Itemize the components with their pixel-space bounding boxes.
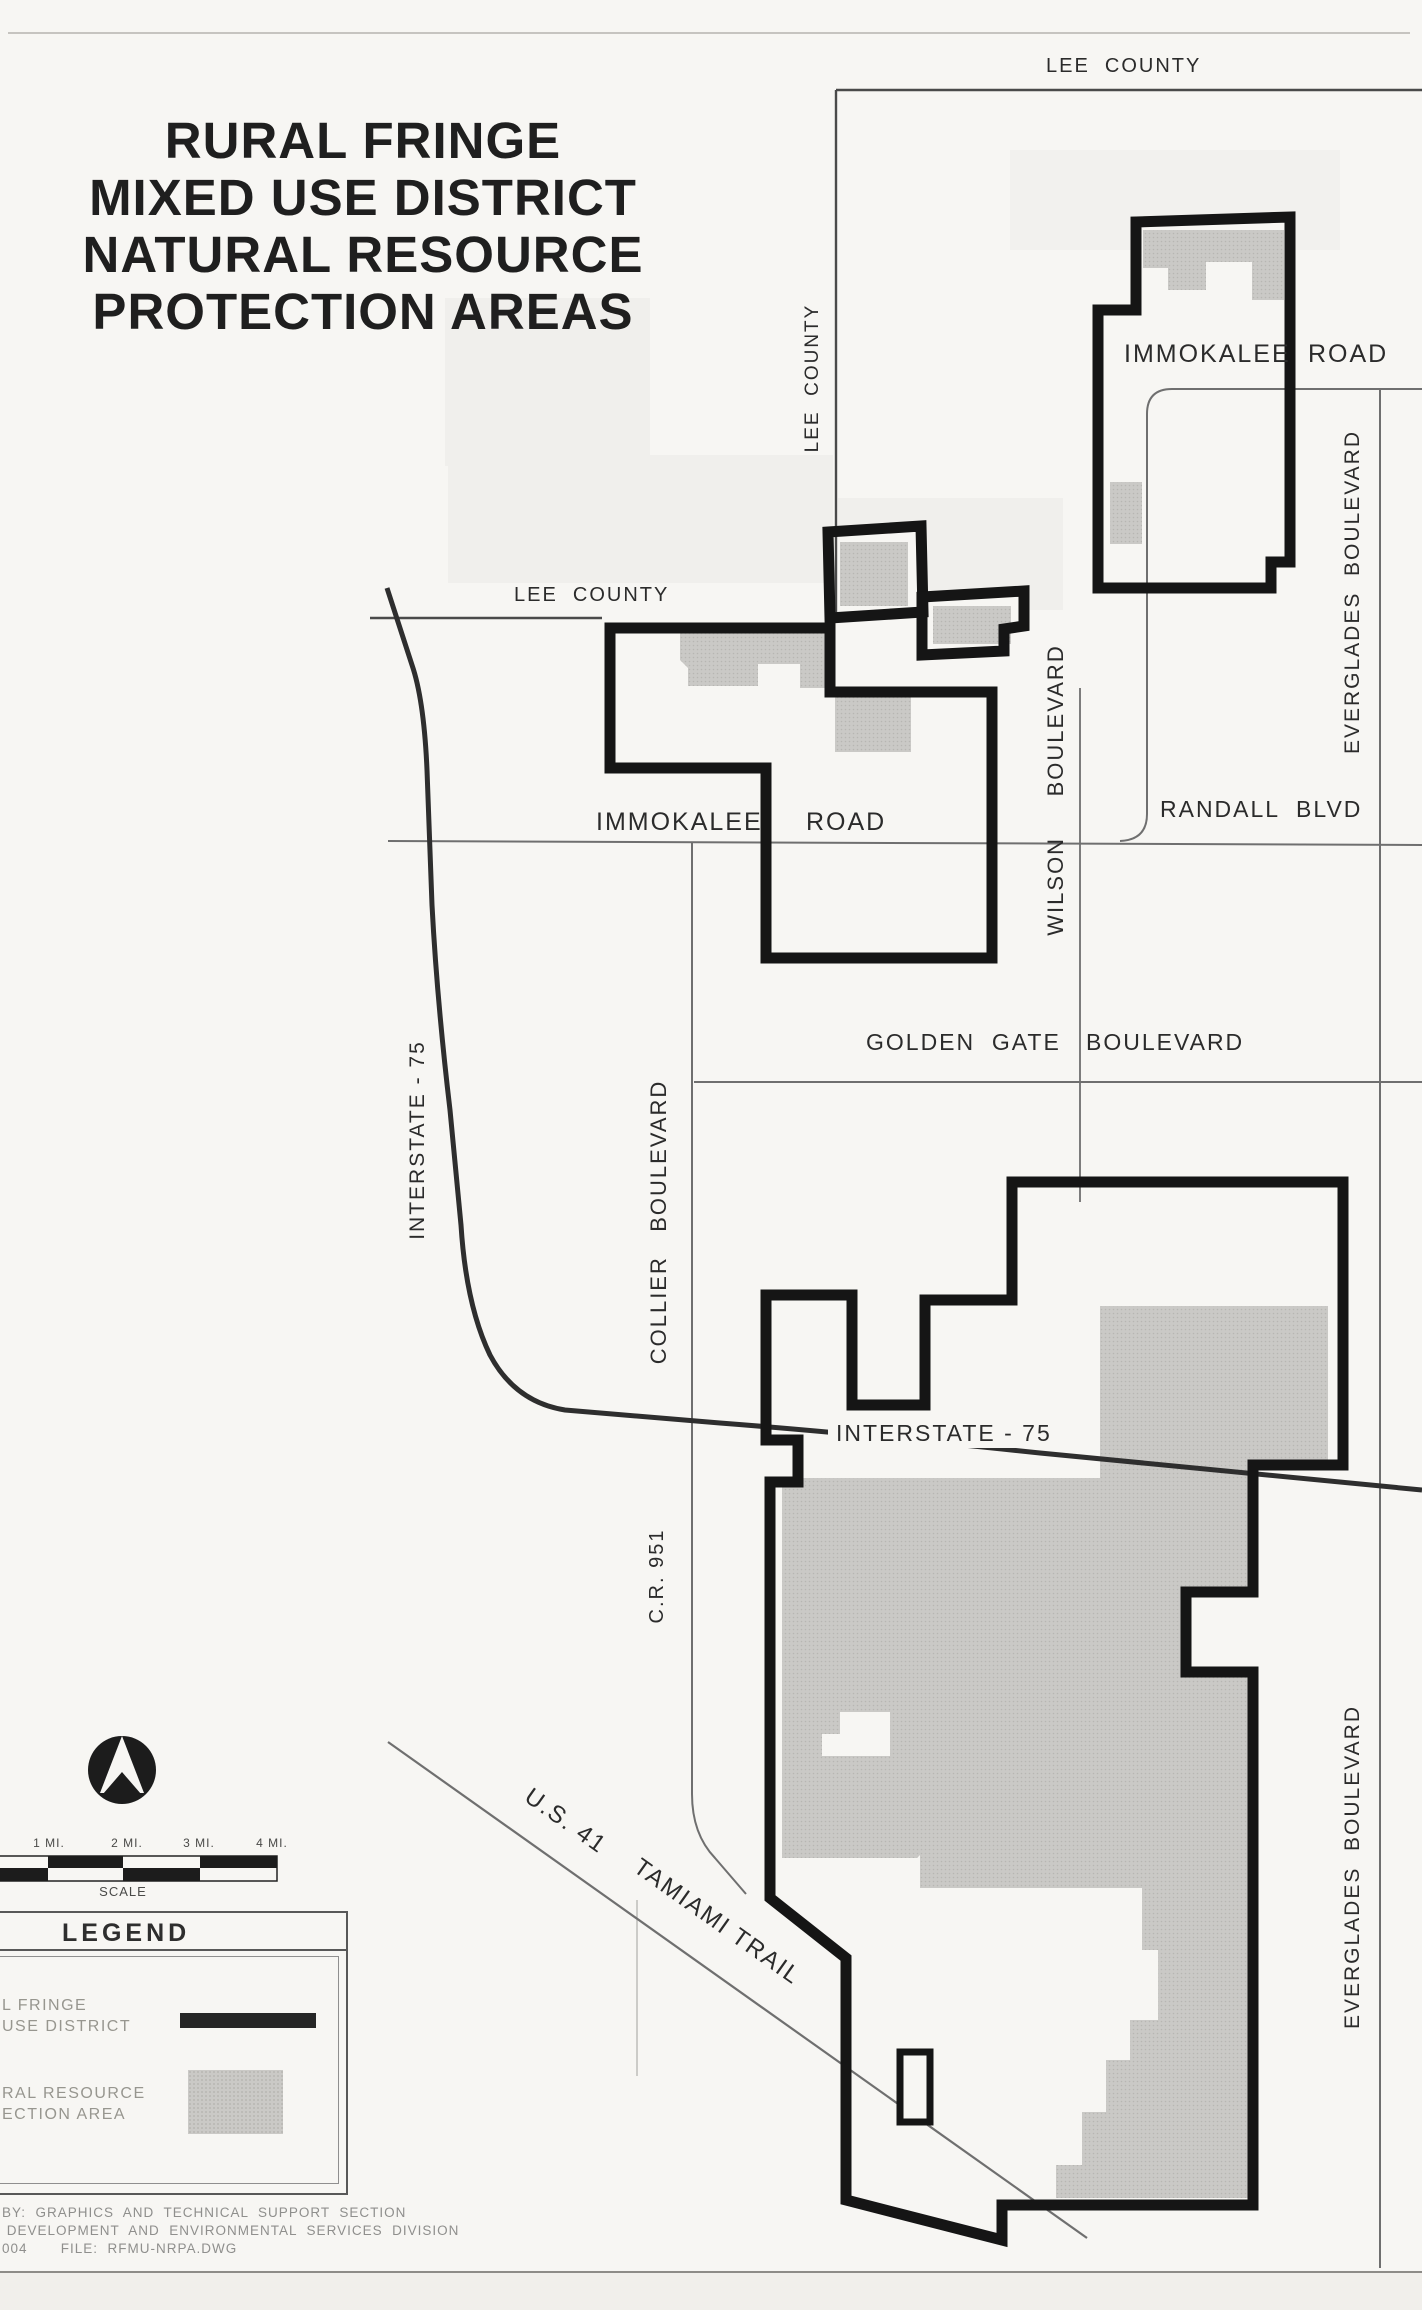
scale-tick-4mi: 4 MI. — [237, 1836, 307, 1850]
label-golden-gate-boulevard: GOLDEN GATE BOULEVARD — [866, 1031, 1244, 1054]
legend-item-nrpa-line2: ECTION AREA — [2, 2106, 126, 2124]
legend-box: LEGEND L FRINGE USE DISTRICT RAL RESOURC… — [0, 1911, 348, 2195]
scale-tick-3mi: 3 MI. — [164, 1836, 234, 1850]
map-title-line: NATURAL RESOURCE — [58, 226, 668, 283]
legend-item-nrpa-line1: RAL RESOURCE — [2, 2085, 146, 2103]
label-road-central: ROAD — [806, 810, 886, 835]
scale-tick-1mi: 1 MI. — [14, 1836, 84, 1850]
scale-tick-2mi: 2 MI. — [92, 1836, 162, 1850]
legend-title: LEGEND — [62, 1919, 190, 1948]
label-cr-951: C.R. 951 — [645, 1501, 669, 1651]
map-title: RURAL FRINGE MIXED USE DISTRICT NATURAL … — [58, 112, 668, 340]
credit-line: BY: GRAPHICS AND TECHNICAL SUPPORT SECTI… — [2, 2205, 406, 2220]
road-collier-cr951 — [692, 842, 746, 1894]
north-arrow-icon — [88, 1736, 156, 1804]
label-everglades-lower: EVERGLADES BOULEVARD — [1339, 1702, 1365, 2032]
label-collier-boulevard: COLLIER BOULEVARD — [646, 1007, 672, 1437]
credit-line: 004 FILE: RFMU-NRPA.DWG — [2, 2241, 237, 2256]
label-lee-county-vertical: LEE COUNTY — [800, 293, 824, 463]
credit-line: DEVELOPMENT AND ENVIRONMENTAL SERVICES D… — [2, 2223, 459, 2238]
label-interstate-75-west: INTERSTATE - 75 — [404, 1020, 430, 1260]
map-title-line: PROTECTION AREAS — [58, 283, 668, 340]
nrpa-ne-side — [1110, 482, 1142, 544]
legend-symbol-district-boundary — [180, 2013, 316, 2028]
label-everglades-upper: EVERGLADES BOULEVARD — [1339, 427, 1365, 757]
scanned-map-page: RURAL FRINGE MIXED USE DISTRICT NATURAL … — [0, 0, 1422, 2310]
legend-body — [0, 1956, 339, 2184]
label-wilson-boulevard: WILSON BOULEVARD — [1043, 580, 1069, 1000]
scale-bar — [0, 1856, 277, 1881]
label-interstate-75-mid: INTERSTATE - 75 — [828, 1420, 1060, 1448]
scale-caption: SCALE — [88, 1884, 158, 1899]
legend-header: LEGEND — [0, 1913, 346, 1951]
map-title-line: RURAL FRINGE — [58, 112, 668, 169]
label-immokalee-ne: IMMOKALEE — [1124, 342, 1291, 367]
nrpa-north-small — [840, 542, 908, 606]
label-immokalee-central: IMMOKALEE — [596, 810, 763, 835]
label-lee-county-top: LEE COUNTY — [1046, 56, 1201, 76]
district-boundary-small-south — [900, 2052, 930, 2122]
nrpa-central-west — [680, 632, 830, 688]
label-road-ne: ROAD — [1308, 342, 1388, 367]
label-randall-blvd: RANDALL BLVD — [1160, 798, 1362, 821]
map-title-line: MIXED USE DISTRICT — [58, 169, 668, 226]
nrpa-central-east — [835, 694, 911, 752]
legend-symbol-nrpa-fill — [188, 2070, 283, 2134]
label-lee-county-west: LEE COUNTY — [514, 585, 669, 605]
legend-item-district-line2: USE DISTRICT — [2, 2018, 131, 2036]
legend-item-district-line1: L FRINGE — [2, 1997, 87, 2015]
